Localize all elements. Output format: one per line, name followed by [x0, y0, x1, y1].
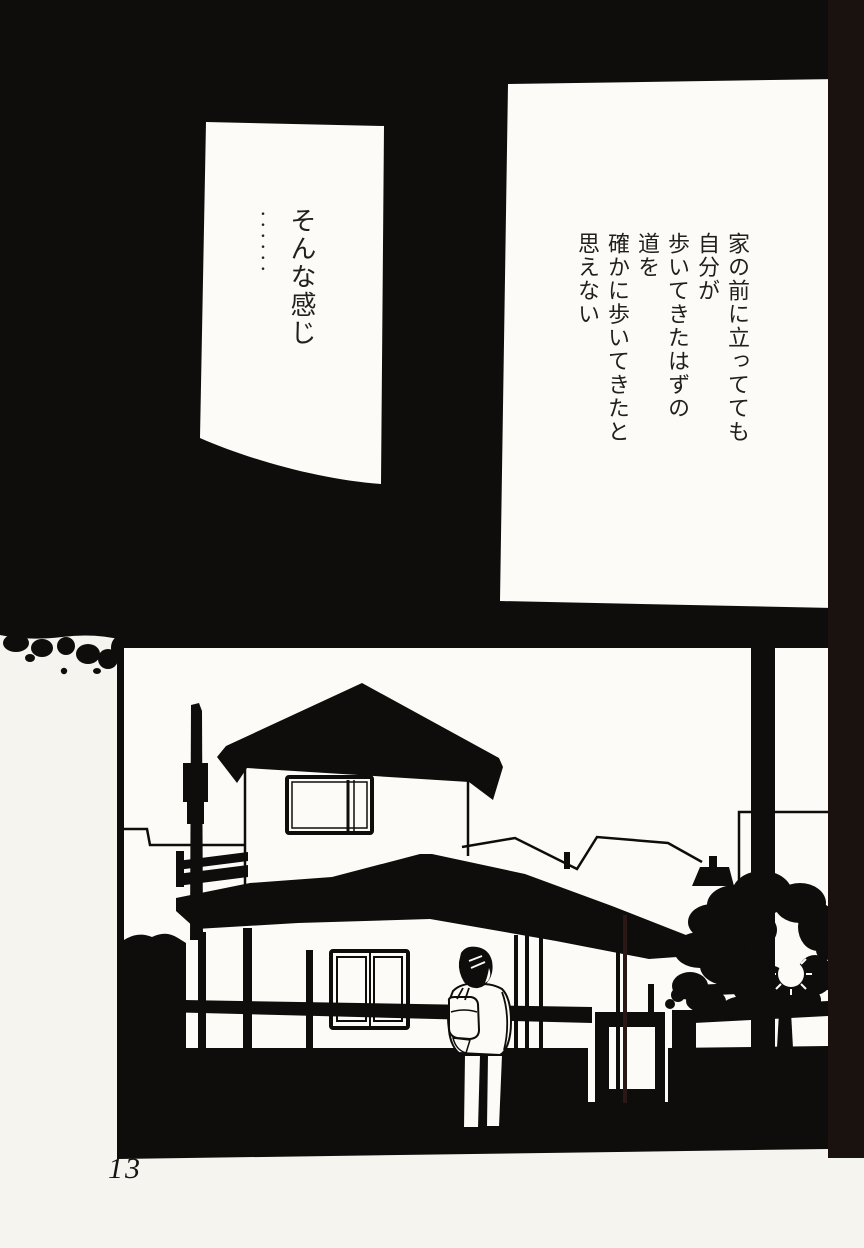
- bottom-panel: [117, 648, 838, 1160]
- window-2f: [287, 777, 372, 833]
- narration-line: 道を: [631, 232, 661, 601]
- narration-line: 確かに歩いてきたと: [601, 232, 631, 601]
- narration-text: 家の前に立ってても 自分が 歩いてきたはずの 道を 確かに歩いてきたと 思えない: [500, 84, 839, 601]
- tree-trunk: [777, 1012, 793, 1048]
- person-bag: [449, 997, 479, 1039]
- hedge: [124, 934, 186, 1060]
- person-leg: [486, 1055, 503, 1127]
- narration-line: 自分が: [691, 232, 721, 601]
- narration-line: 歩いてきたはずの: [661, 232, 691, 601]
- bubble-line: そんな感じ: [282, 207, 320, 438]
- manga-page: そんな感じ •••••• 家の前に立ってても 自分が 歩いてきたはずの 道を 確…: [0, 0, 864, 1248]
- person-leg: [463, 1055, 481, 1128]
- narration-line: 家の前に立ってても: [721, 232, 751, 601]
- ink-blots: [3, 634, 125, 674]
- narration-line: 思えない: [571, 232, 601, 601]
- speech-bubble-text: そんな感じ ••••••: [206, 123, 383, 438]
- utility-pole-right: [751, 648, 775, 1150]
- bubble-ellipsis: ••••••: [244, 207, 282, 438]
- page-number: 13: [108, 1152, 142, 1186]
- panel-left-border: [117, 648, 124, 1158]
- gate-pillar: [672, 1010, 696, 1152]
